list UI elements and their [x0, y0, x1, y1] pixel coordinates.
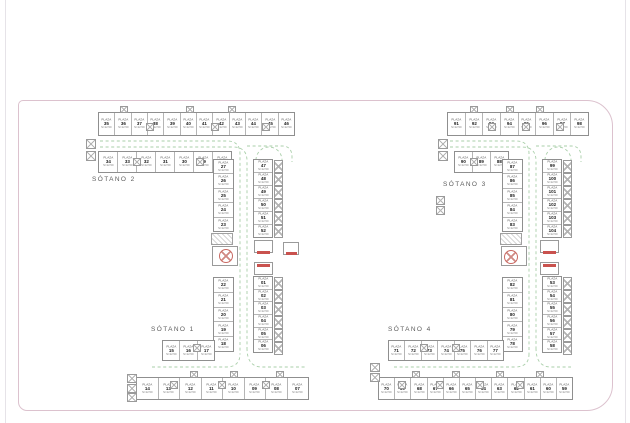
parking-stall-46: PLAZA46S=12.50 [278, 113, 294, 135]
parking-stall-04: PLAZA04S=12.50 [254, 314, 272, 327]
sotano-3-stall-strip-2: PLAZA87S=12.50PLAZA86S=12.50PLAZA85S=12.… [502, 159, 523, 232]
sotano-3-stall-strip-3: PLAZA99S=12.50PLAZA100S=12.50PLAZA101S=1… [542, 159, 562, 238]
stall-area: S=12.50 [507, 302, 517, 305]
shaft-x-box [186, 106, 194, 113]
sotano-1-stall-strip-0: PLAZA22S=12.50PLAZA21S=12.50PLAZA20S=12.… [213, 277, 234, 352]
stall-area: S=12.50 [160, 164, 170, 167]
parking-stall-103: PLAZA103S=12.50 [543, 211, 561, 224]
stall-area: S=12.50 [507, 198, 517, 201]
stall-area: S=12.50 [547, 233, 557, 236]
parking-stall-05: PLAZA05S=12.50 [254, 327, 272, 340]
stall-area: S=12.50 [218, 332, 228, 335]
parking-stall-82: PLAZA82S=12.50 [503, 278, 522, 292]
storage-box [274, 329, 283, 342]
parking-stall-84: PLAZA84S=12.50 [503, 202, 522, 216]
storage-box [563, 290, 572, 303]
floorplan-sheet: PLAZA35S=12.50PLAZA36S=12.50PLAZA37S=12.… [0, 0, 630, 423]
floor-label-sotano-4: SÓTANO 4 [388, 326, 432, 333]
stall-area: S=12.50 [258, 220, 268, 223]
vent-circle-icon [504, 250, 518, 264]
shaft-x-box [193, 344, 201, 352]
stall-area: S=12.50 [527, 391, 537, 394]
stall-area: S=12.50 [218, 184, 228, 187]
parking-stall-30: PLAZA30S=12.50 [174, 152, 193, 172]
stall-area: S=12.50 [547, 194, 557, 197]
stall-area: S=12.50 [250, 391, 260, 394]
shaft-x-box [262, 123, 270, 131]
shaft-x-box [488, 123, 496, 131]
shaft-x-box [522, 123, 530, 131]
shaft-x-box [412, 371, 420, 378]
parking-stall-14: PLAZA14S=12.50 [137, 378, 158, 399]
parking-stall-66: PLAZA66S=12.50 [443, 378, 459, 399]
stall-area: S=12.50 [258, 285, 268, 288]
parking-stall-50: PLAZA50S=12.50 [254, 198, 272, 211]
parking-stall-43: PLAZA43S=12.50 [229, 113, 245, 135]
stall-area: S=12.50 [185, 391, 195, 394]
stall-area: S=12.50 [462, 391, 472, 394]
stall-area: S=12.50 [495, 391, 505, 394]
shaft-x-box [470, 158, 478, 166]
parking-stall-71: PLAZA71S=12.50 [389, 341, 404, 360]
stall-area: S=12.50 [414, 391, 424, 394]
shaft-x-box [276, 371, 284, 378]
stall-area: S=12.50 [398, 391, 408, 394]
parking-stall-23: PLAZA23S=12.50 [214, 217, 233, 231]
stair-hatch [211, 233, 233, 245]
stall-area: S=12.50 [392, 353, 402, 356]
parking-stall-51: PLAZA51S=12.50 [254, 211, 272, 224]
stall-area: S=12.50 [408, 353, 418, 356]
stall-area: S=12.50 [478, 391, 488, 394]
floor-label-sotano-2: SÓTANO 2 [92, 176, 136, 183]
parking-stall-35: PLAZA35S=12.50 [99, 113, 114, 135]
parking-stall-24: PLAZA24S=12.50 [214, 202, 233, 216]
stall-area: S=12.50 [218, 287, 228, 290]
shaft-x-box [436, 206, 445, 215]
stall-area: S=12.50 [218, 347, 228, 350]
parking-stall-25: PLAZA25S=12.50 [214, 188, 233, 202]
parking-stall-101: PLAZA101S=12.50 [543, 185, 561, 198]
parking-stall-02: PLAZA02S=12.50 [254, 289, 272, 302]
storage-box [563, 199, 572, 212]
stall-area: S=12.50 [451, 126, 461, 129]
storage-box [563, 173, 572, 186]
elevator-door-red-bar [543, 251, 556, 254]
parking-stall-39: PLAZA39S=12.50 [163, 113, 179, 135]
parking-stall-98: PLAZA98S=12.50 [570, 113, 588, 135]
shaft-x-box [536, 371, 544, 378]
sotano-4-stall-strip-2: PLAZA71S=12.50PLAZA72S=12.50PLAZA73S=12.… [388, 340, 504, 361]
parking-stall-49: PLAZA49S=12.50 [254, 185, 272, 198]
sotano-2-stall-strip-3: PLAZA47S=12.50PLAZA48S=12.50PLAZA49S=12.… [253, 159, 273, 238]
shaft-x-box [262, 381, 270, 389]
parking-stall-01: PLAZA01S=12.50 [254, 277, 272, 289]
shaft-x-box [127, 393, 137, 402]
stall-area: S=12.50 [507, 212, 517, 215]
parking-stall-48: PLAZA48S=12.50 [254, 172, 272, 185]
parking-stall-79: PLAZA79S=12.50 [503, 321, 522, 336]
shaft-x-box [556, 123, 564, 131]
storage-box [274, 199, 283, 212]
parking-stall-44: PLAZA44S=12.50 [245, 113, 261, 135]
stall-area: S=12.50 [258, 336, 268, 339]
sotano-3-stall-strip-1: PLAZA90S=12.50PLAZA89S=12.50PLAZA88S=12.… [454, 151, 509, 173]
stall-area: S=12.50 [218, 212, 228, 215]
stall-area: S=12.50 [201, 353, 211, 356]
shaft-x-box [452, 344, 460, 352]
plan-layer: PLAZA35S=12.50PLAZA36S=12.50PLAZA37S=12.… [0, 0, 630, 423]
stall-area: S=12.50 [218, 198, 228, 201]
stall-area: S=12.50 [469, 126, 479, 129]
storage-box [274, 160, 283, 173]
elevator-door-red-bar [543, 264, 556, 267]
shaft-x-box [146, 123, 154, 131]
shaft-x-box [398, 381, 406, 389]
shaft-x-box [120, 106, 128, 113]
storage-box [274, 186, 283, 199]
stall-area: S=12.50 [474, 353, 484, 356]
shaft-x-box [470, 106, 478, 113]
shaft-x-box [170, 381, 178, 389]
parking-stall-68: PLAZA68S=12.50 [410, 378, 426, 399]
parking-stall-60: PLAZA60S=12.50 [540, 378, 556, 399]
stall-area: S=12.50 [424, 353, 434, 356]
parking-stall-52: PLAZA52S=12.50 [254, 224, 272, 237]
stall-area: S=12.50 [179, 164, 189, 167]
storage-box [563, 225, 572, 238]
shaft-x-box [228, 106, 236, 113]
stall-area: S=12.50 [504, 126, 514, 129]
storage-box [563, 186, 572, 199]
stall-area: S=12.50 [547, 168, 557, 171]
stall-area: S=12.50 [539, 126, 549, 129]
parking-stall-12: PLAZA12S=12.50 [179, 378, 201, 399]
storage-box [274, 173, 283, 186]
stall-area: S=12.50 [118, 126, 128, 129]
shaft-x-box [476, 381, 484, 389]
parking-stall-34: PLAZA34S=12.50 [99, 152, 117, 172]
parking-stall-80: PLAZA80S=12.50 [503, 307, 522, 322]
shaft-x-box [218, 381, 226, 389]
shaft-x-box [230, 371, 238, 378]
stall-area: S=12.50 [547, 285, 557, 288]
stall-area: S=12.50 [547, 207, 557, 210]
stall-area: S=12.50 [507, 347, 517, 350]
parking-stall-78: PLAZA78S=12.50 [503, 336, 522, 351]
stall-area: S=12.50 [164, 391, 174, 394]
stair-hatch [500, 233, 522, 245]
stall-area: S=12.50 [543, 391, 553, 394]
sotano-3-stall-strip-0: PLAZA91S=12.50PLAZA92S=12.50PLAZA93S=12.… [447, 112, 589, 136]
stall-area: S=12.50 [507, 317, 517, 320]
shaft-x-box [127, 384, 137, 393]
shaft-x-box [452, 371, 460, 378]
storage-box [563, 212, 572, 225]
stall-area: S=12.50 [559, 391, 569, 394]
stall-area: S=12.50 [507, 227, 517, 230]
storage-box [274, 316, 283, 329]
storage-box [274, 342, 283, 355]
floor-label-sotano-1: SÓTANO 1 [151, 326, 195, 333]
stall-area: S=12.50 [258, 349, 268, 352]
parking-stall-85: PLAZA85S=12.50 [503, 188, 522, 202]
shaft-x-box [211, 123, 219, 131]
stall-area: S=12.50 [575, 126, 585, 129]
stall-area: S=12.50 [258, 194, 268, 197]
stall-area: S=12.50 [271, 391, 281, 394]
stall-area: S=12.50 [547, 181, 557, 184]
parking-stall-57: PLAZA57S=12.50 [543, 327, 561, 340]
stall-area: S=12.50 [199, 126, 209, 129]
parking-stall-65: PLAZA65S=12.50 [459, 378, 475, 399]
parking-stall-20: PLAZA20S=12.50 [214, 307, 233, 322]
shaft-x-box [190, 371, 198, 378]
shaft-x-box [86, 151, 96, 161]
stall-area: S=12.50 [446, 391, 456, 394]
parking-stall-07: PLAZA07S=12.50 [287, 378, 309, 399]
stall-area: S=12.50 [166, 353, 176, 356]
shaft-x-box [496, 371, 504, 378]
parking-stall-26: PLAZA26S=12.50 [214, 173, 233, 187]
parking-stall-76: PLAZA76S=12.50 [470, 341, 486, 360]
parking-stall-59: PLAZA59S=12.50 [556, 378, 572, 399]
stall-area: S=12.50 [458, 164, 468, 167]
parking-stall-56: PLAZA56S=12.50 [543, 314, 561, 327]
storage-box [274, 277, 283, 290]
stall-area: S=12.50 [141, 164, 151, 167]
parking-stall-91: PLAZA91S=12.50 [448, 113, 465, 135]
parking-stall-99: PLAZA99S=12.50 [543, 160, 561, 172]
stall-area: S=12.50 [167, 126, 177, 129]
parking-stall-54: PLAZA54S=12.50 [543, 289, 561, 302]
storage-box [274, 290, 283, 303]
parking-stall-94: PLAZA94S=12.50 [500, 113, 518, 135]
stall-area: S=12.50 [122, 164, 132, 167]
stall-area: S=12.50 [547, 323, 557, 326]
stall-area: S=12.50 [547, 298, 557, 301]
stall-area: S=12.50 [258, 323, 268, 326]
shaft-x-box [420, 344, 428, 352]
stall-area: S=12.50 [134, 126, 144, 129]
parking-stall-104: PLAZA104S=12.50 [543, 224, 561, 237]
stall-area: S=12.50 [102, 126, 112, 129]
sotano-4-stall-strip-1: PLAZA53S=12.50PLAZA54S=12.50PLAZA55S=12.… [542, 276, 562, 353]
parking-stall-86: PLAZA86S=12.50 [503, 173, 522, 187]
stall-area: S=12.50 [207, 391, 217, 394]
stall-area: S=12.50 [258, 298, 268, 301]
stall-area: S=12.50 [507, 287, 517, 290]
stall-area: S=12.50 [258, 233, 268, 236]
shaft-x-box [536, 106, 544, 113]
stall-area: S=12.50 [258, 168, 268, 171]
sotano-4-stall-strip-0: PLAZA82S=12.50PLAZA81S=12.50PLAZA80S=12.… [502, 277, 523, 352]
stall-area: S=12.50 [142, 391, 152, 394]
storage-box [563, 303, 572, 316]
vent-circle-icon [219, 249, 233, 263]
parking-stall-18: PLAZA18S=12.50 [214, 336, 233, 351]
stall-area: S=12.50 [258, 207, 268, 210]
parking-stall-55: PLAZA55S=12.50 [543, 301, 561, 314]
stall-area: S=12.50 [507, 332, 517, 335]
parking-stall-19: PLAZA19S=12.50 [214, 321, 233, 336]
parking-stall-47: PLAZA47S=12.50 [254, 160, 272, 172]
stall-area: S=12.50 [547, 336, 557, 339]
stall-area: S=12.50 [218, 169, 228, 172]
stall-area: S=12.50 [228, 391, 238, 394]
parking-stall-72: PLAZA72S=12.50 [404, 341, 420, 360]
sotano-2-stall-strip-2: PLAZA27S=12.50PLAZA26S=12.50PLAZA25S=12.… [213, 159, 234, 232]
elevator-door-red-bar [257, 251, 270, 254]
shaft-x-box [436, 196, 445, 205]
elevator-door-red-bar [257, 264, 270, 267]
parking-stall-36: PLAZA36S=12.50 [114, 113, 130, 135]
parking-stall-100: PLAZA100S=12.50 [543, 172, 561, 185]
shaft-x-box [438, 139, 448, 149]
parking-stall-77: PLAZA77S=12.50 [487, 341, 503, 360]
sotano-1-stall-strip-2: PLAZA15S=12.50PLAZA16S=12.50PLAZA17S=12.… [162, 340, 215, 361]
parking-stall-87: PLAZA87S=12.50 [503, 160, 522, 173]
storage-box [563, 329, 572, 342]
shaft-x-box [370, 363, 380, 372]
stall-area: S=12.50 [232, 126, 242, 129]
parking-stall-40: PLAZA40S=12.50 [180, 113, 196, 135]
stall-area: S=12.50 [218, 302, 228, 305]
parking-stall-15: PLAZA15S=12.50 [163, 341, 179, 360]
storage-box [274, 225, 283, 238]
parking-stall-83: PLAZA83S=12.50 [503, 217, 522, 231]
stall-area: S=12.50 [218, 227, 228, 230]
stall-area: S=12.50 [441, 353, 451, 356]
stall-area: S=12.50 [457, 353, 467, 356]
storage-box [563, 277, 572, 290]
parking-stall-21: PLAZA21S=12.50 [214, 292, 233, 307]
parking-stall-03: PLAZA03S=12.50 [254, 301, 272, 314]
floor-label-sotano-3: SÓTANO 3 [443, 181, 487, 188]
shaft-x-box [506, 106, 514, 113]
stall-area: S=12.50 [183, 353, 193, 356]
shaft-x-box [438, 151, 448, 161]
elevator-door-red-bar [286, 252, 297, 255]
shaft-x-box [516, 381, 524, 389]
stall-area: S=12.50 [507, 184, 517, 187]
parking-stall-70: PLAZA70S=12.50 [379, 378, 394, 399]
shaft-x-box [127, 374, 137, 383]
parking-stall-102: PLAZA102S=12.50 [543, 198, 561, 211]
parking-stall-37: PLAZA37S=12.50 [131, 113, 147, 135]
storage-box [274, 303, 283, 316]
shaft-x-box [86, 139, 96, 149]
stall-area: S=12.50 [248, 126, 258, 129]
storage-box [563, 316, 572, 329]
stall-area: S=12.50 [511, 391, 521, 394]
shaft-x-box [133, 158, 141, 166]
storage-box [563, 160, 572, 173]
stall-area: S=12.50 [183, 126, 193, 129]
stall-area: S=12.50 [547, 220, 557, 223]
stall-area: S=12.50 [103, 164, 113, 167]
sotano-2-stall-strip-1: PLAZA34S=12.50PLAZA33S=12.50PLAZA32S=12.… [98, 151, 232, 173]
parking-stall-06: PLAZA06S=12.50 [254, 339, 272, 352]
parking-stall-22: PLAZA22S=12.50 [214, 278, 233, 292]
shaft-x-box [436, 381, 444, 389]
parking-stall-63: PLAZA63S=12.50 [491, 378, 507, 399]
stall-area: S=12.50 [430, 391, 440, 394]
parking-stall-53: PLAZA53S=12.50 [543, 277, 561, 289]
stall-area: S=12.50 [547, 349, 557, 352]
stall-area: S=12.50 [218, 317, 228, 320]
shaft-x-box [370, 373, 380, 382]
parking-stall-96: PLAZA96S=12.50 [535, 113, 553, 135]
parking-stall-58: PLAZA58S=12.50 [543, 339, 561, 352]
stall-area: S=12.50 [381, 391, 391, 394]
parking-stall-27: PLAZA27S=12.50 [214, 160, 233, 173]
stall-area: S=12.50 [490, 353, 500, 356]
shaft-x-box [196, 158, 204, 166]
parking-stall-41: PLAZA41S=12.50 [196, 113, 212, 135]
stall-area: S=12.50 [507, 169, 517, 172]
storage-box [563, 342, 572, 355]
parking-stall-92: PLAZA92S=12.50 [465, 113, 483, 135]
parking-stall-61: PLAZA61S=12.50 [524, 378, 540, 399]
sotano-1-stall-strip-1: PLAZA01S=12.50PLAZA02S=12.50PLAZA03S=12.… [253, 276, 273, 353]
stall-area: S=12.50 [293, 391, 303, 394]
stall-area: S=12.50 [281, 126, 291, 129]
stall-area: S=12.50 [258, 181, 268, 184]
parking-stall-31: PLAZA31S=12.50 [155, 152, 174, 172]
storage-box [274, 212, 283, 225]
parking-stall-81: PLAZA81S=12.50 [503, 292, 522, 307]
